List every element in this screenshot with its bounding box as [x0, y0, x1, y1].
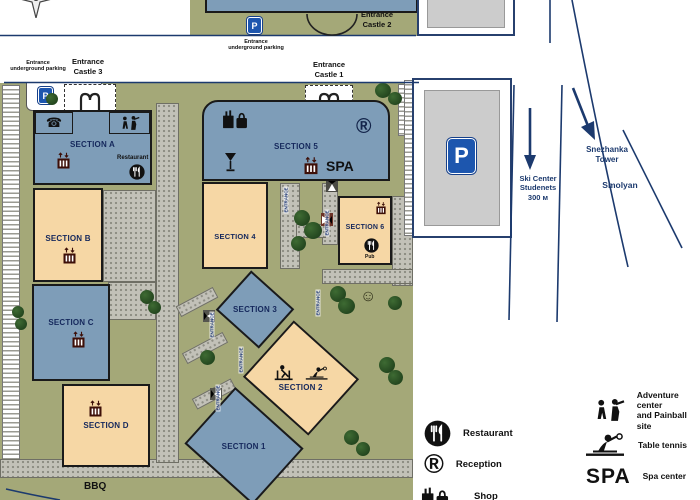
legend-adventure-label: Adventure center and Painball site: [637, 390, 700, 431]
smolyan-label: Smolyan: [596, 180, 644, 191]
tree-icon: [344, 430, 359, 445]
entrance-path-label: ENTRANCE: [316, 289, 321, 316]
shop-icon: [420, 485, 450, 500]
legend-restaurant: Restaurant: [424, 420, 513, 447]
shop-icon: [220, 108, 250, 130]
legend-reception-label: Reception: [456, 459, 502, 470]
section-b-label: SECTION B: [35, 234, 101, 243]
reception-icon: ®: [424, 451, 444, 478]
table-tennis-icon: [584, 433, 626, 457]
legend-table-tennis: Table tennis: [584, 433, 687, 457]
section-d-building: SECTION D: [62, 384, 150, 467]
elevator-icon: [89, 400, 102, 417]
tree-icon: [291, 236, 306, 251]
tree-icon: [388, 370, 403, 385]
gate-icon: [78, 91, 102, 111]
resort-site-map: P Entrance Castle 2 Entrance underground…: [0, 0, 700, 500]
entrance-castle2-label: Entrance Castle 2: [348, 10, 406, 30]
tree-icon: [388, 92, 402, 105]
elevator-icon: [376, 201, 386, 215]
tree-icon: [304, 222, 322, 239]
entrance-underground-top-label: Entrance underground parking: [218, 39, 294, 52]
tree-icon: [46, 93, 58, 105]
entrance-path-label: ENTRANCE: [239, 346, 244, 373]
entrance-castle1-label: Entrance Castle 1: [303, 60, 355, 80]
main-walkway: [156, 103, 179, 463]
pub-icon: [364, 238, 379, 253]
entrance-path-label: ENTRANCE: [216, 384, 221, 411]
restaurant-label: Restaurant: [117, 155, 148, 161]
section-d-label: SECTION D: [64, 421, 148, 430]
section-5-building: ® SECTION 5 SPA: [202, 100, 390, 181]
legend-reception: ® Reception: [424, 451, 502, 478]
section-c-label: SECTION C: [34, 318, 108, 327]
elevator-icon: [72, 331, 85, 348]
section-3-label: SECTION 3: [233, 305, 277, 314]
restaurant-icon: [129, 164, 145, 180]
legend-restaurant-label: Restaurant: [463, 428, 513, 439]
restaurant-icon: [424, 420, 451, 447]
section-2-label: SECTION 2: [279, 383, 323, 392]
spa-label: SPA: [326, 158, 354, 174]
section-a-building: ☎ SECTION A Restaurant: [33, 110, 152, 185]
section-1-label: SECTION 1: [222, 442, 266, 451]
tree-icon: [356, 442, 370, 456]
section-4-label: SECTION 4: [204, 232, 266, 241]
tree-icon: [200, 350, 215, 365]
spa-icon: SPA: [586, 466, 631, 487]
castle3-gate: [64, 84, 116, 112]
ski-icon: [273, 365, 295, 381]
section-4-building: SECTION 4: [202, 182, 268, 269]
smiley-icon: ☺: [360, 288, 376, 306]
tree-icon: [12, 306, 24, 318]
compass-icon: [16, 0, 56, 18]
elevator-icon: [304, 156, 318, 175]
east-connector: [322, 269, 413, 284]
west-wall: [2, 85, 20, 462]
entrance-path-label: ENTRANCE: [210, 311, 215, 338]
legend-spa: SPA Spa center: [586, 466, 686, 487]
parking-sign-east: P: [447, 138, 476, 174]
path-arrow-marker: [326, 180, 338, 192]
parking-sign-top: P: [247, 17, 262, 34]
elevator-icon: [63, 247, 76, 264]
snezhanka-tower-label: Snezhanka Tower: [576, 145, 638, 165]
section-6-building: SECTION 6 Pub: [338, 196, 392, 265]
entrance-underground-left-label: Entrance underground parking: [6, 60, 70, 73]
section-c-building: SECTION C: [32, 284, 110, 381]
adventure-icon: [594, 396, 625, 424]
wine-bar-icon: [224, 152, 237, 172]
entrance-path-label: ENTRANCE: [284, 186, 289, 213]
courtyard-path-b: [103, 190, 156, 282]
section-6-label: SECTION 6: [340, 224, 390, 231]
tree-icon: [338, 298, 355, 314]
section-b-building: SECTION B: [33, 188, 103, 282]
reception-icon: ®: [356, 116, 371, 137]
ski-center-label: Ski Center Studenets 300 м: [508, 174, 568, 202]
legend-shop: Shop: [420, 485, 498, 500]
entrance-path-label: ENTRANCE: [325, 209, 330, 236]
phone-icon: ☎: [35, 112, 73, 134]
parking-lot-north-surface: [427, 0, 505, 28]
elevator-icon: [57, 152, 70, 169]
table-tennis-icon: [305, 366, 329, 381]
section-a-label: SECTION A: [35, 140, 150, 149]
entrance-castle3-label: Entrance Castle 3: [62, 57, 114, 77]
tree-icon: [15, 318, 27, 330]
legend-table-tennis-label: Table tennis: [638, 440, 687, 450]
legend-adventure: Adventure center and Painball site: [594, 390, 700, 431]
bbq-label: BBQ: [84, 481, 106, 492]
pub-label: Pub: [365, 254, 374, 260]
legend-shop-label: Shop: [474, 491, 498, 500]
section-5-label: SECTION 5: [204, 142, 388, 151]
tree-icon: [388, 296, 402, 310]
adventure-icon: [109, 112, 150, 134]
tree-icon: [148, 301, 161, 314]
legend-spa-label: Spa center: [643, 471, 686, 481]
